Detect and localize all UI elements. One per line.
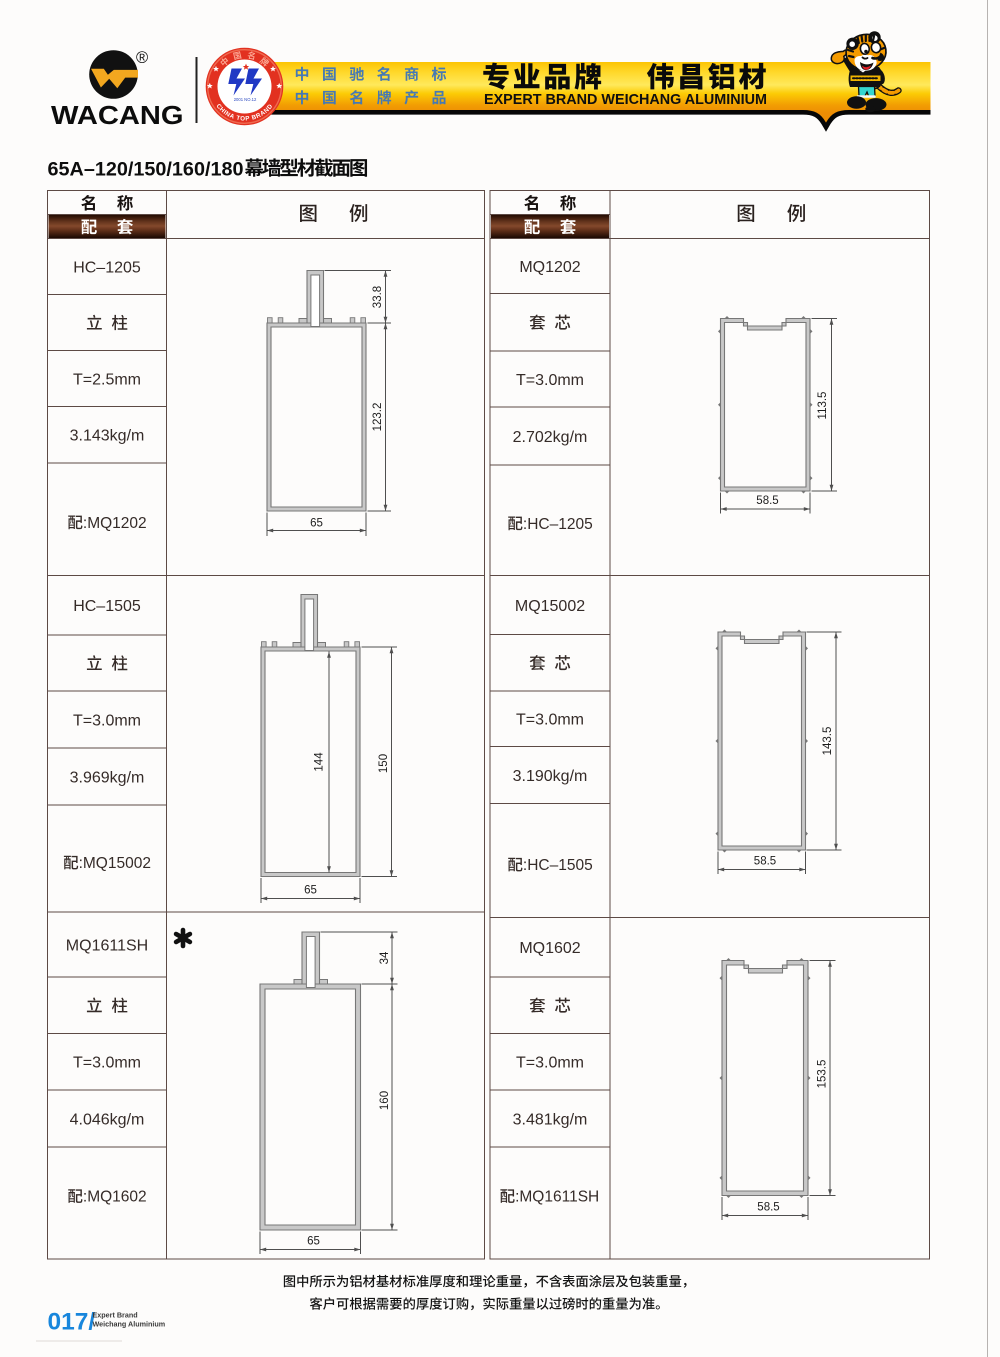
svg-text:123.2: 123.2 <box>372 403 384 432</box>
svg-text::HC–1505: :HC–1505 <box>523 857 593 874</box>
svg-text:4.046kg/m: 4.046kg/m <box>70 1111 145 1128</box>
svg-text:34: 34 <box>379 951 391 964</box>
svg-text:153.5: 153.5 <box>817 1060 829 1089</box>
svg-text:113.5: 113.5 <box>817 392 829 420</box>
svg-text:2001 NO.12: 2001 NO.12 <box>234 97 257 102</box>
svg-text:3.190kg/m: 3.190kg/m <box>513 768 588 785</box>
svg-text:MQ1611SH: MQ1611SH <box>66 937 148 954</box>
svg-text:T=2.5mm: T=2.5mm <box>73 371 141 388</box>
svg-text:2.702kg/m: 2.702kg/m <box>513 429 588 446</box>
svg-text::MQ1202: :MQ1202 <box>83 515 147 532</box>
svg-text:MQ1202: MQ1202 <box>519 259 580 276</box>
svg-text:58.5: 58.5 <box>756 495 778 507</box>
svg-text:65: 65 <box>304 885 317 897</box>
svg-text:HC–1205: HC–1205 <box>73 259 141 276</box>
svg-text:3.143kg/m: 3.143kg/m <box>70 428 145 445</box>
svg-text:T=3.0mm: T=3.0mm <box>73 1055 141 1072</box>
svg-text:144: 144 <box>314 752 326 772</box>
svg-text::MQ15002: :MQ15002 <box>79 855 151 872</box>
svg-text:T=3.0mm: T=3.0mm <box>516 1055 584 1072</box>
svg-text:58.5: 58.5 <box>754 856 776 868</box>
svg-text:65: 65 <box>307 1236 320 1248</box>
svg-text:T=3.0mm: T=3.0mm <box>73 712 141 729</box>
svg-text:HC–1505: HC–1505 <box>73 598 141 615</box>
svg-text:143.5: 143.5 <box>822 727 834 756</box>
svg-text:33.8: 33.8 <box>372 286 384 308</box>
svg-text:WACANG: WACANG <box>51 100 184 130</box>
svg-text:Expert Brand: Expert Brand <box>93 1311 138 1320</box>
svg-text:017/: 017/ <box>48 1309 96 1336</box>
svg-text:®: ® <box>136 49 148 67</box>
svg-text:T=3.0mm: T=3.0mm <box>516 712 584 729</box>
svg-text:65: 65 <box>310 518 323 530</box>
svg-text::HC–1205: :HC–1205 <box>523 516 593 533</box>
svg-text::MQ1602: :MQ1602 <box>83 1189 147 1206</box>
svg-text::MQ1611SH: :MQ1611SH <box>515 1189 599 1206</box>
svg-text:MQ1602: MQ1602 <box>519 940 580 957</box>
svg-text:EXPERT BRAND WEICHANG ALUMINIU: EXPERT BRAND WEICHANG ALUMINIUM <box>484 91 767 108</box>
svg-text:MQ15002: MQ15002 <box>515 598 585 615</box>
svg-text:T=3.0mm: T=3.0mm <box>516 372 584 389</box>
svg-text:65A–120/150/160/180: 65A–120/150/160/180 <box>48 160 244 181</box>
svg-text:150: 150 <box>378 754 390 773</box>
svg-text:Weichang Aluminium: Weichang Aluminium <box>93 1320 166 1329</box>
svg-text:58.5: 58.5 <box>757 1202 779 1214</box>
svg-text:3.969kg/m: 3.969kg/m <box>70 769 145 786</box>
svg-text:160: 160 <box>379 1091 391 1110</box>
svg-text:3.481kg/m: 3.481kg/m <box>513 1111 588 1128</box>
